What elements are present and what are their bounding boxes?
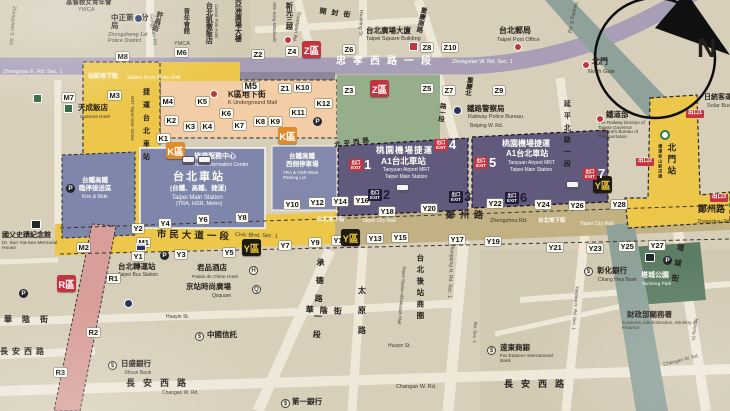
exit-marker-z6: Z6 [343,45,355,54]
exit-marker-k6: K6 [220,109,233,118]
zone-badge-y: Y區 [242,239,261,256]
exit-marker-m6: M6 [175,48,188,57]
exit-marker-m3: M3 [108,91,121,100]
map-label: 中正第一分局 [111,14,153,30]
map-label: K Underground Mall [228,101,277,107]
exit-marker-y3: Y3 [175,250,187,259]
exit-marker-r3: R3 [54,368,67,377]
exit-marker-k3: K3 [184,122,197,131]
exit-marker-k5: K5 [196,97,209,106]
zone-badge-k: K區 [278,127,297,144]
exit-marker-k11: K11 [290,108,306,117]
map-label: The Railway Division of Taiwan Governor … [598,121,650,140]
map-label: 台北後站商圈 [416,254,424,323]
map-label: Shin Kong Mitsukoshi [272,2,276,42]
exit-marker-y19: Y19 [485,237,501,246]
map-label: Jihsun Bank [124,371,151,376]
post-office-icon [514,43,522,51]
mrt-station-strip: 捷運台北車站 [142,88,149,166]
map-label: 鄭州路 [698,205,725,214]
map-label: 台北地下街 [538,219,566,225]
exit-chip-4: 出口EXIT4 [434,139,456,151]
map-label: Qsquare [212,294,231,299]
map-label: Taipei City Mall [580,222,614,227]
map-label: YMCA [174,42,190,48]
map-label: 長安西路 [504,380,572,389]
exit-marker-z4: Z4 [286,47,298,56]
map-label: 鄭州路 [446,211,488,220]
exit-marker-z8: Z8 [421,43,433,52]
bank-icon: $ [584,267,593,276]
map-label: (TRA, HSR, Metro) [176,202,222,208]
map-label: 長安西路 [0,348,48,356]
map-label: 台北轉運站 [118,263,156,271]
map-label: Caesar Park Hotel [214,4,218,38]
hsr-icon [198,156,211,165]
exit-marker-m4: M4 [161,97,174,106]
exit-marker-y27: Y27 [649,241,665,250]
map-label: 亞洲廣場大樓 [234,0,241,42]
exit-marker-y10: Y10 [284,200,300,209]
map-label: 出口2 [636,158,654,166]
map-label: 桃園機場捷運 [376,146,433,155]
map-label: MRT Taipei Main Station [130,96,134,141]
map-label: Railway Police Bureau [468,115,523,121]
zone-badge-z: Z區 [302,41,321,58]
map-label: 延平北路一段 [563,100,570,172]
map-label: Zhongzheng 1st Police District [108,33,156,45]
map-label: Taipei City Mall [362,219,396,224]
map-label: (台鐵、高鐵、捷運) [170,186,226,193]
exit-marker-y15: Y15 [392,233,408,242]
exit-marker-r2: R2 [87,328,100,337]
map-label: Far Eastern International Bank [500,354,556,364]
map-label: Yanping N. Rd. Sec. 1 [570,286,579,330]
police-icon [453,106,462,115]
north-gate-icon [582,61,590,69]
map-label: Dr. Sun Yat-Sen Memorial House [2,241,58,251]
exit-marker-z3: Z3 [343,86,355,95]
map-label: North Gate [588,70,615,76]
taipei-square-icon [409,42,418,51]
exit-marker-y21: Y21 [547,243,563,252]
map-label: 台北地下街 [317,218,345,224]
map-label: A1台北車站 [381,157,426,166]
map-label: Zhongshan S. Rd. [7,6,16,47]
map-label: 華陰街 [306,306,348,317]
compass-n: N [697,34,717,62]
map-label: Taipei Main Station [510,168,552,173]
map-label: K區地下街 [228,91,266,99]
exit-marker-k7: K7 [233,121,246,130]
exit-marker-y4: Y4 [159,219,171,228]
tra-icon [210,90,218,98]
memorial-house-icon [31,220,41,229]
exit-marker-z5: Z5 [421,84,433,93]
map-label: 出口3 [710,194,728,202]
exit-marker-k4: K4 [201,122,214,131]
map-label: 長安西路 [126,379,194,388]
map-label: Taipei Bus Station [118,273,158,278]
exit-marker-k12: K12 [315,99,332,108]
map-label: 塔城街 [669,243,685,290]
map-label: Changan W. Rd. [162,391,199,396]
station-area-map: NZhongshan S. Rd.基督教女青年會YWCA中正第一分局Zhongz… [0,0,730,411]
exit-marker-k2: K2 [165,116,178,125]
map-label: 君品酒店 [197,264,227,272]
parking-icon: P [160,251,169,260]
map-label: 捷運松山新店線 [658,144,662,179]
exit-chip-3: 出口EXIT3 [449,191,471,203]
map-label: Taoyuan Airport MRT [508,161,555,166]
map-label: A1台北車站 [506,150,548,158]
exit-marker-r1: R1 [107,274,120,283]
map-label: Taipei Main Station [385,175,427,180]
exit-marker-y22: Y22 [487,199,503,208]
mitsukoshi-icon [284,36,292,44]
map-label: 桃園機場捷運 [502,140,550,148]
map-label: YWCA [78,8,95,14]
exit-marker-y13: Y13 [367,234,383,243]
exit-marker-k9: K9 [269,117,282,126]
parking-icon: P [19,289,28,298]
map-label: TRA & HSR West Parking Lot [283,171,333,180]
exit-marker-z10: Z10 [442,43,458,52]
map-label: 國父史蹟紀念館 [2,232,51,239]
map-label: Cosmos Hotel [80,115,110,120]
hotel-icon: H [249,266,258,275]
map-label: Rd. Sec. 1 [471,322,477,343]
map-label: 華陰街 [4,316,58,324]
hotel-poi-icon [64,104,73,113]
exit-marker-z2: Z2 [252,50,264,59]
police-district-icon [134,14,143,23]
map-label: Huaining St. [357,10,363,37]
bank-icon: $ [487,346,496,355]
map-label: 重慶北 [462,76,471,96]
exit-chip-5: 出口EXIT5 [474,157,496,169]
map-label: 台鐵高鐵 [82,178,108,185]
map-label: 日盛銀行 [121,360,151,368]
exit-marker-y14: Y14 [332,197,348,206]
map-label: 重慶南路 [414,6,426,33]
map-label: 基督教女青年會 [66,0,112,7]
map-label: Zhangzhou Rd. [697,220,730,225]
map-label: 開封街 [319,8,356,20]
exit-marker-y23: Y23 [587,244,603,253]
road-civic-blvd: 市民大道一段 [157,230,232,243]
songshan-xindian-line-icon [660,130,670,140]
map-label: 承德路一段 [311,258,324,348]
bus-icon [136,243,146,251]
exit-marker-m7: M7 [62,93,75,102]
exit-chip-2: 出口EXIT2 [368,189,390,201]
airport-mrt-train-icon [396,184,409,193]
map-label: Zhongxiao W. Rd. Sec. 1 [452,60,513,66]
exit-marker-y18: Y18 [379,207,395,216]
parking-icon: P [66,184,75,193]
map-label: 青年會館 [181,8,188,34]
map-overlay: NZhongshan S. Rd.基督教女青年會YWCA中正第一分局Zhongz… [0,0,730,411]
exit-marker-y8: Y8 [236,213,248,222]
map-label: 中國信託 [207,331,237,339]
map-label: 臨停接送區 [79,186,112,193]
exit-marker-y5: Y5 [223,248,235,257]
map-label: 鐵路警察局 [467,105,505,113]
park-building-icon [645,253,655,262]
map-label: 鐵道部 [606,111,629,119]
map-label: 出口1 [686,110,704,118]
zone-badge-z: Z區 [370,80,389,97]
railway-division-icon [596,115,604,123]
exit-chip-6: 出口EXIT6 [505,192,527,204]
exit-marker-z7: Z7 [443,86,455,95]
airport-mrt-train-icon [566,181,579,190]
map-label: 遠東商銀 [500,344,530,352]
map-label: Beiping W. Rd. [470,124,503,129]
map-label: Solar Bus [707,104,730,110]
station-title: 台北車站 [173,172,225,184]
map-label: Tacheng Park [642,282,671,287]
exit-chip-7: 出口EXIT7 [583,168,605,180]
map-label: Taoyuan Airport MRT [383,168,430,173]
map-label: Chang Hwa Bank [598,278,637,283]
map-label: Zhengzhou Rd. [490,219,528,225]
map-label: Taipei Station Wholesale Mall [396,266,406,325]
road-zhongxiao: 忠孝西路一段 [336,57,438,68]
map-label: 日統客運 [704,94,730,101]
poi-icon [33,94,42,103]
map-label: Husyin St. [388,344,411,349]
exit-marker-y12: Y12 [309,198,325,207]
exit-marker-y1: Y1 [132,252,144,261]
map-label: Palais de Chine Hotel [192,275,238,280]
map-label: 北門 [592,58,608,66]
exit-marker-y6: Y6 [197,215,209,224]
map-label: 台北廣場大廈 [366,27,411,35]
map-label: 北平西路 [334,138,373,150]
exit-marker-y17: Y17 [449,235,465,244]
zone-badge-r: R區 [57,275,76,292]
zone-badge-y: Y區 [341,229,360,246]
exit-marker-m5: M5 [243,82,259,91]
exit-marker-z1: Z1 [279,84,291,93]
map-label: Yanping S. Rd. [565,1,578,35]
map-label: 彰化銀行 [597,267,627,275]
exit-marker-y20: Y20 [421,204,437,213]
parking-icon: P [663,256,672,265]
map-label: 台北郵局 [499,27,531,35]
bank-icon: $ [108,361,117,370]
map-label: 塔城公園 [641,272,669,279]
map-label: Station Front Metro Mall [127,76,180,81]
map-label: Kiss & Ride [82,195,108,200]
map-label: 台北凱撒飯店 [205,2,212,44]
map-label: Zhongxiao E. Rd. Sec. 1 [3,70,63,76]
exit-marker-y2: Y2 [132,224,144,233]
parking-icon: P [313,117,322,126]
map-label: 天成飯店 [78,104,108,112]
map-label: 太原路 [357,286,365,346]
exit-marker-k10: K10 [294,83,311,92]
train-icon [182,156,195,165]
map-label: Huayin St. [166,315,189,320]
exit-marker-y26: Y26 [569,201,585,210]
map-label: 第一銀行 [292,398,322,406]
exit-marker-y7: Y7 [279,241,291,250]
exit-marker-y9: Y9 [309,238,321,247]
map-label: Chongqing N. Rd. Sec. 1 [446,243,454,299]
map-label: 路一段 [435,102,444,122]
beimen-station: 北門站 [667,143,676,178]
qsquare-icon: Q [252,285,261,294]
map-label: 站前地下街 [88,74,118,80]
bank-icon: $ [195,332,204,341]
map-label: 新光三越 [285,2,292,30]
bus-station-shield-icon [124,299,133,308]
exit-marker-k8: K8 [254,117,267,126]
exit-marker-m8: M8 [116,52,129,61]
map-label: 台鐵高鐵 [289,154,315,161]
exit-chip-1: 出口EXIT1 [349,159,371,171]
exit-marker-y25: Y25 [619,242,635,251]
map-label: 財政部關務署 [627,311,672,319]
exit-marker-y24: Y24 [535,200,551,209]
exit-marker-m2: M2 [77,243,90,252]
map-label: Changan W. Rd. [663,354,700,368]
map-label: 京站時尚廣場 [186,283,231,291]
map-label: Changan W. Rd. [396,385,436,391]
bank-icon: $ [281,399,290,408]
exit-marker-y28: Y28 [611,200,627,209]
exit-marker-z9: Z9 [493,86,505,95]
map-label: 西側停車場 [286,162,319,169]
